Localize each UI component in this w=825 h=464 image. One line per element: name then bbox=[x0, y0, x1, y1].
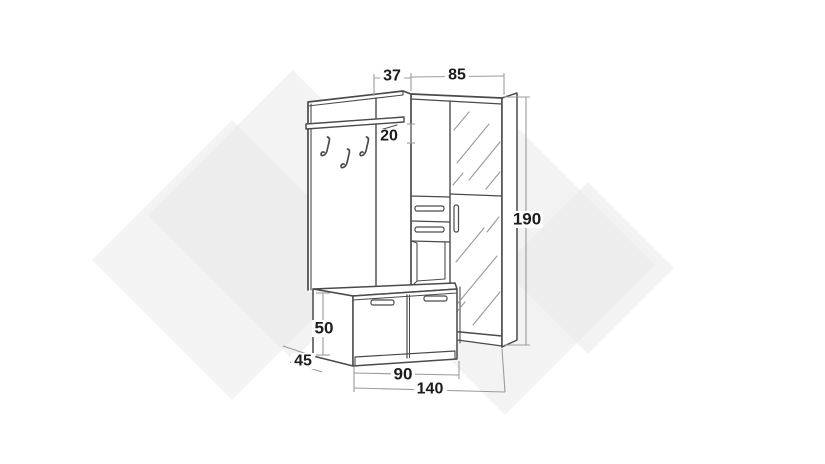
mirror-door-handle bbox=[454, 205, 459, 232]
dim-label-bench-height: 50 bbox=[315, 319, 334, 338]
drawer-handle bbox=[415, 206, 444, 211]
bench-door-handle bbox=[371, 300, 394, 305]
dim-label-panel-top-width: 37 bbox=[383, 68, 401, 85]
bench-door-handle bbox=[424, 296, 447, 301]
dim-label-wardrobe-top-width: 85 bbox=[448, 67, 466, 84]
dim-label-bench-width: 90 bbox=[394, 365, 413, 384]
dim-label-bench-depth: 45 bbox=[294, 353, 312, 370]
dim-label-total-width: 140 bbox=[417, 381, 444, 398]
dim-label-total-height: 190 bbox=[513, 210, 541, 229]
drawer-handle bbox=[415, 227, 444, 232]
technical-drawing: 37 85 20 190 50 45 90 140 bbox=[0, 0, 825, 464]
dim-label-shelf-gap: 20 bbox=[380, 128, 398, 145]
drawing-canvas: 37 85 20 190 50 45 90 140 bbox=[0, 0, 825, 464]
